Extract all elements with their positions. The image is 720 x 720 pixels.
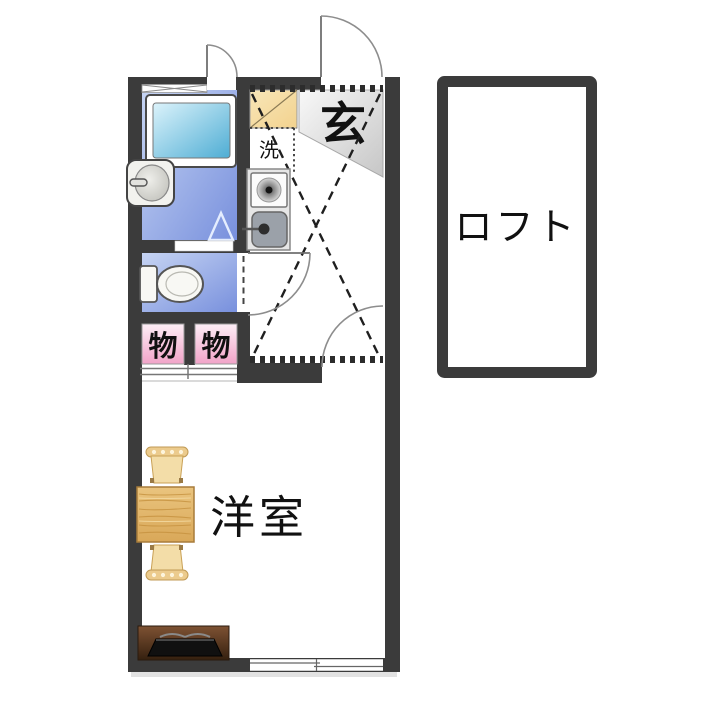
entrance-door: [321, 16, 382, 77]
chair-bottom: [146, 545, 188, 580]
chair-top: [146, 447, 188, 483]
toilet-room: [140, 253, 237, 312]
washbasin: [127, 160, 174, 206]
bathtub: [146, 95, 236, 167]
loft-room: ロフト: [443, 82, 592, 373]
loft-label: ロフト: [454, 205, 577, 249]
closet-sliding-doors: [140, 364, 237, 381]
shoe-cabinet: [250, 90, 297, 128]
entrance-label: 玄: [320, 97, 366, 151]
floorplan-drawing: 物 物 玄 洗: [0, 0, 720, 720]
western-room: 洋室: [137, 447, 308, 660]
top-vent-window: [142, 85, 207, 93]
dining-table: [137, 487, 194, 542]
bath-door-opening: [175, 241, 233, 251]
western-room-label: 洋室: [210, 491, 308, 544]
storage-left-label: 物: [148, 329, 177, 363]
storage-box-left: 物: [142, 324, 184, 364]
toilet: [140, 266, 203, 302]
bottom-window: [250, 658, 383, 672]
floor-shadow: [131, 672, 397, 677]
bathroom: [127, 90, 237, 240]
storage-box-right: 物: [195, 324, 237, 364]
tv-screen: [148, 639, 222, 656]
washing-machine-space: 洗: [250, 128, 297, 172]
entrance-area: 玄: [299, 90, 383, 177]
washroom-door: [248, 253, 310, 315]
bathroom-small-door: [207, 45, 237, 90]
floorplan-canvas: 物 物 玄 洗: [0, 0, 720, 720]
stove-burner: [251, 173, 287, 207]
kitchen-unit: [242, 169, 290, 250]
tv-stand: [138, 626, 229, 660]
storage-right-label: 物: [201, 329, 230, 363]
